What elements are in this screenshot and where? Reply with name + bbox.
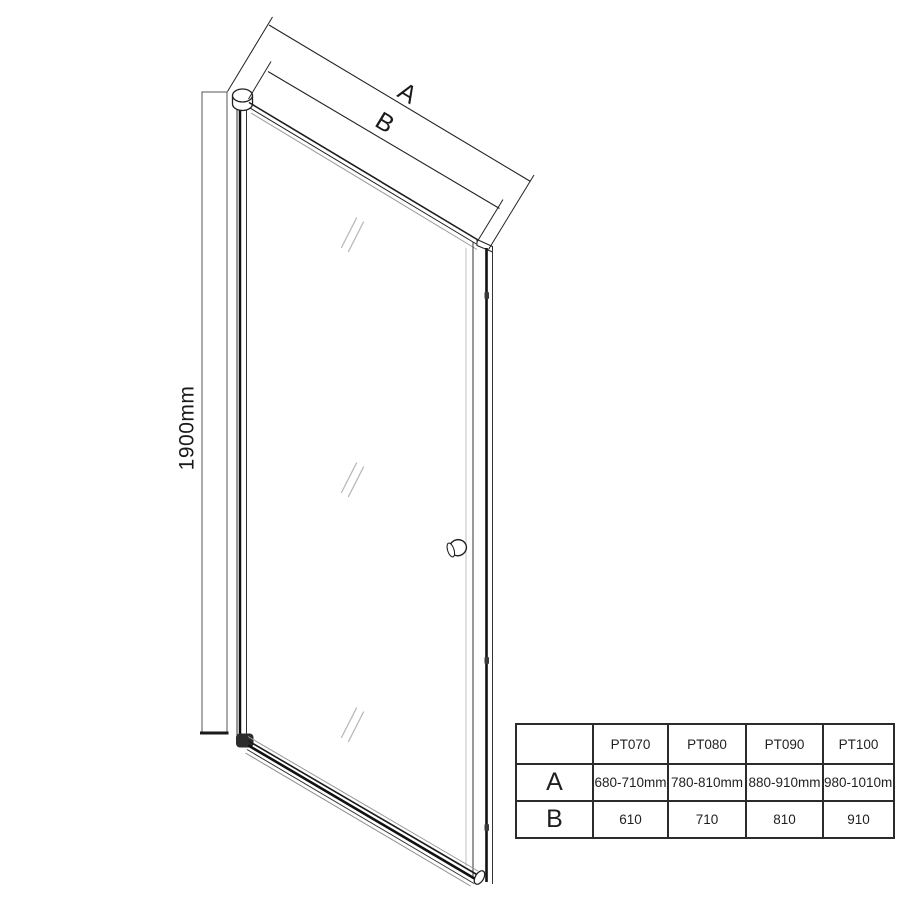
table-row-b: B 610 710 810 910 bbox=[516, 801, 894, 838]
post-screw bbox=[485, 657, 490, 664]
table-header-cell: PT080 bbox=[668, 724, 746, 764]
table-row-a: A 680-710mm 780-810mm 880-910mm 980-1010… bbox=[516, 764, 894, 801]
door-knob bbox=[445, 537, 468, 558]
post-screw bbox=[485, 292, 490, 299]
right-frame-post bbox=[466, 240, 493, 885]
bottom-rail-end-cap bbox=[472, 869, 487, 886]
dimension-label-a: A bbox=[393, 77, 422, 110]
post-screw bbox=[485, 824, 490, 831]
table-header-cell: PT090 bbox=[746, 724, 823, 764]
height-dimension-label: 1900mm bbox=[176, 386, 199, 471]
top-hinge bbox=[233, 89, 253, 111]
bottom-rail bbox=[246, 737, 487, 887]
table-header-row: PT070 PT080 PT090 PT100 bbox=[516, 724, 894, 764]
table-cell: 610 bbox=[593, 801, 668, 838]
table-cell: 880-910mm bbox=[746, 764, 823, 801]
size-table: PT070 PT080 PT090 PT100 A 680-710mm 780-… bbox=[515, 723, 895, 839]
wall-profile bbox=[200, 92, 229, 733]
table-row-label: B bbox=[516, 801, 593, 838]
shower-door-spec-sheet: 1900mm bbox=[0, 0, 900, 900]
table-header-cell: PT100 bbox=[823, 724, 894, 764]
table-cell: 810 bbox=[746, 801, 823, 838]
table-cell: 980-1010mm bbox=[823, 764, 894, 801]
table-cell: 910 bbox=[823, 801, 894, 838]
table-cell: 710 bbox=[668, 801, 746, 838]
table-cell: 780-810mm bbox=[668, 764, 746, 801]
table-cell: 680-710mm bbox=[593, 764, 668, 801]
table-row-label: A bbox=[516, 764, 593, 801]
glass-reflection bbox=[342, 218, 364, 742]
table-corner-cell bbox=[516, 724, 593, 764]
left-frame-post bbox=[237, 103, 247, 739]
table-header-cell: PT070 bbox=[593, 724, 668, 764]
